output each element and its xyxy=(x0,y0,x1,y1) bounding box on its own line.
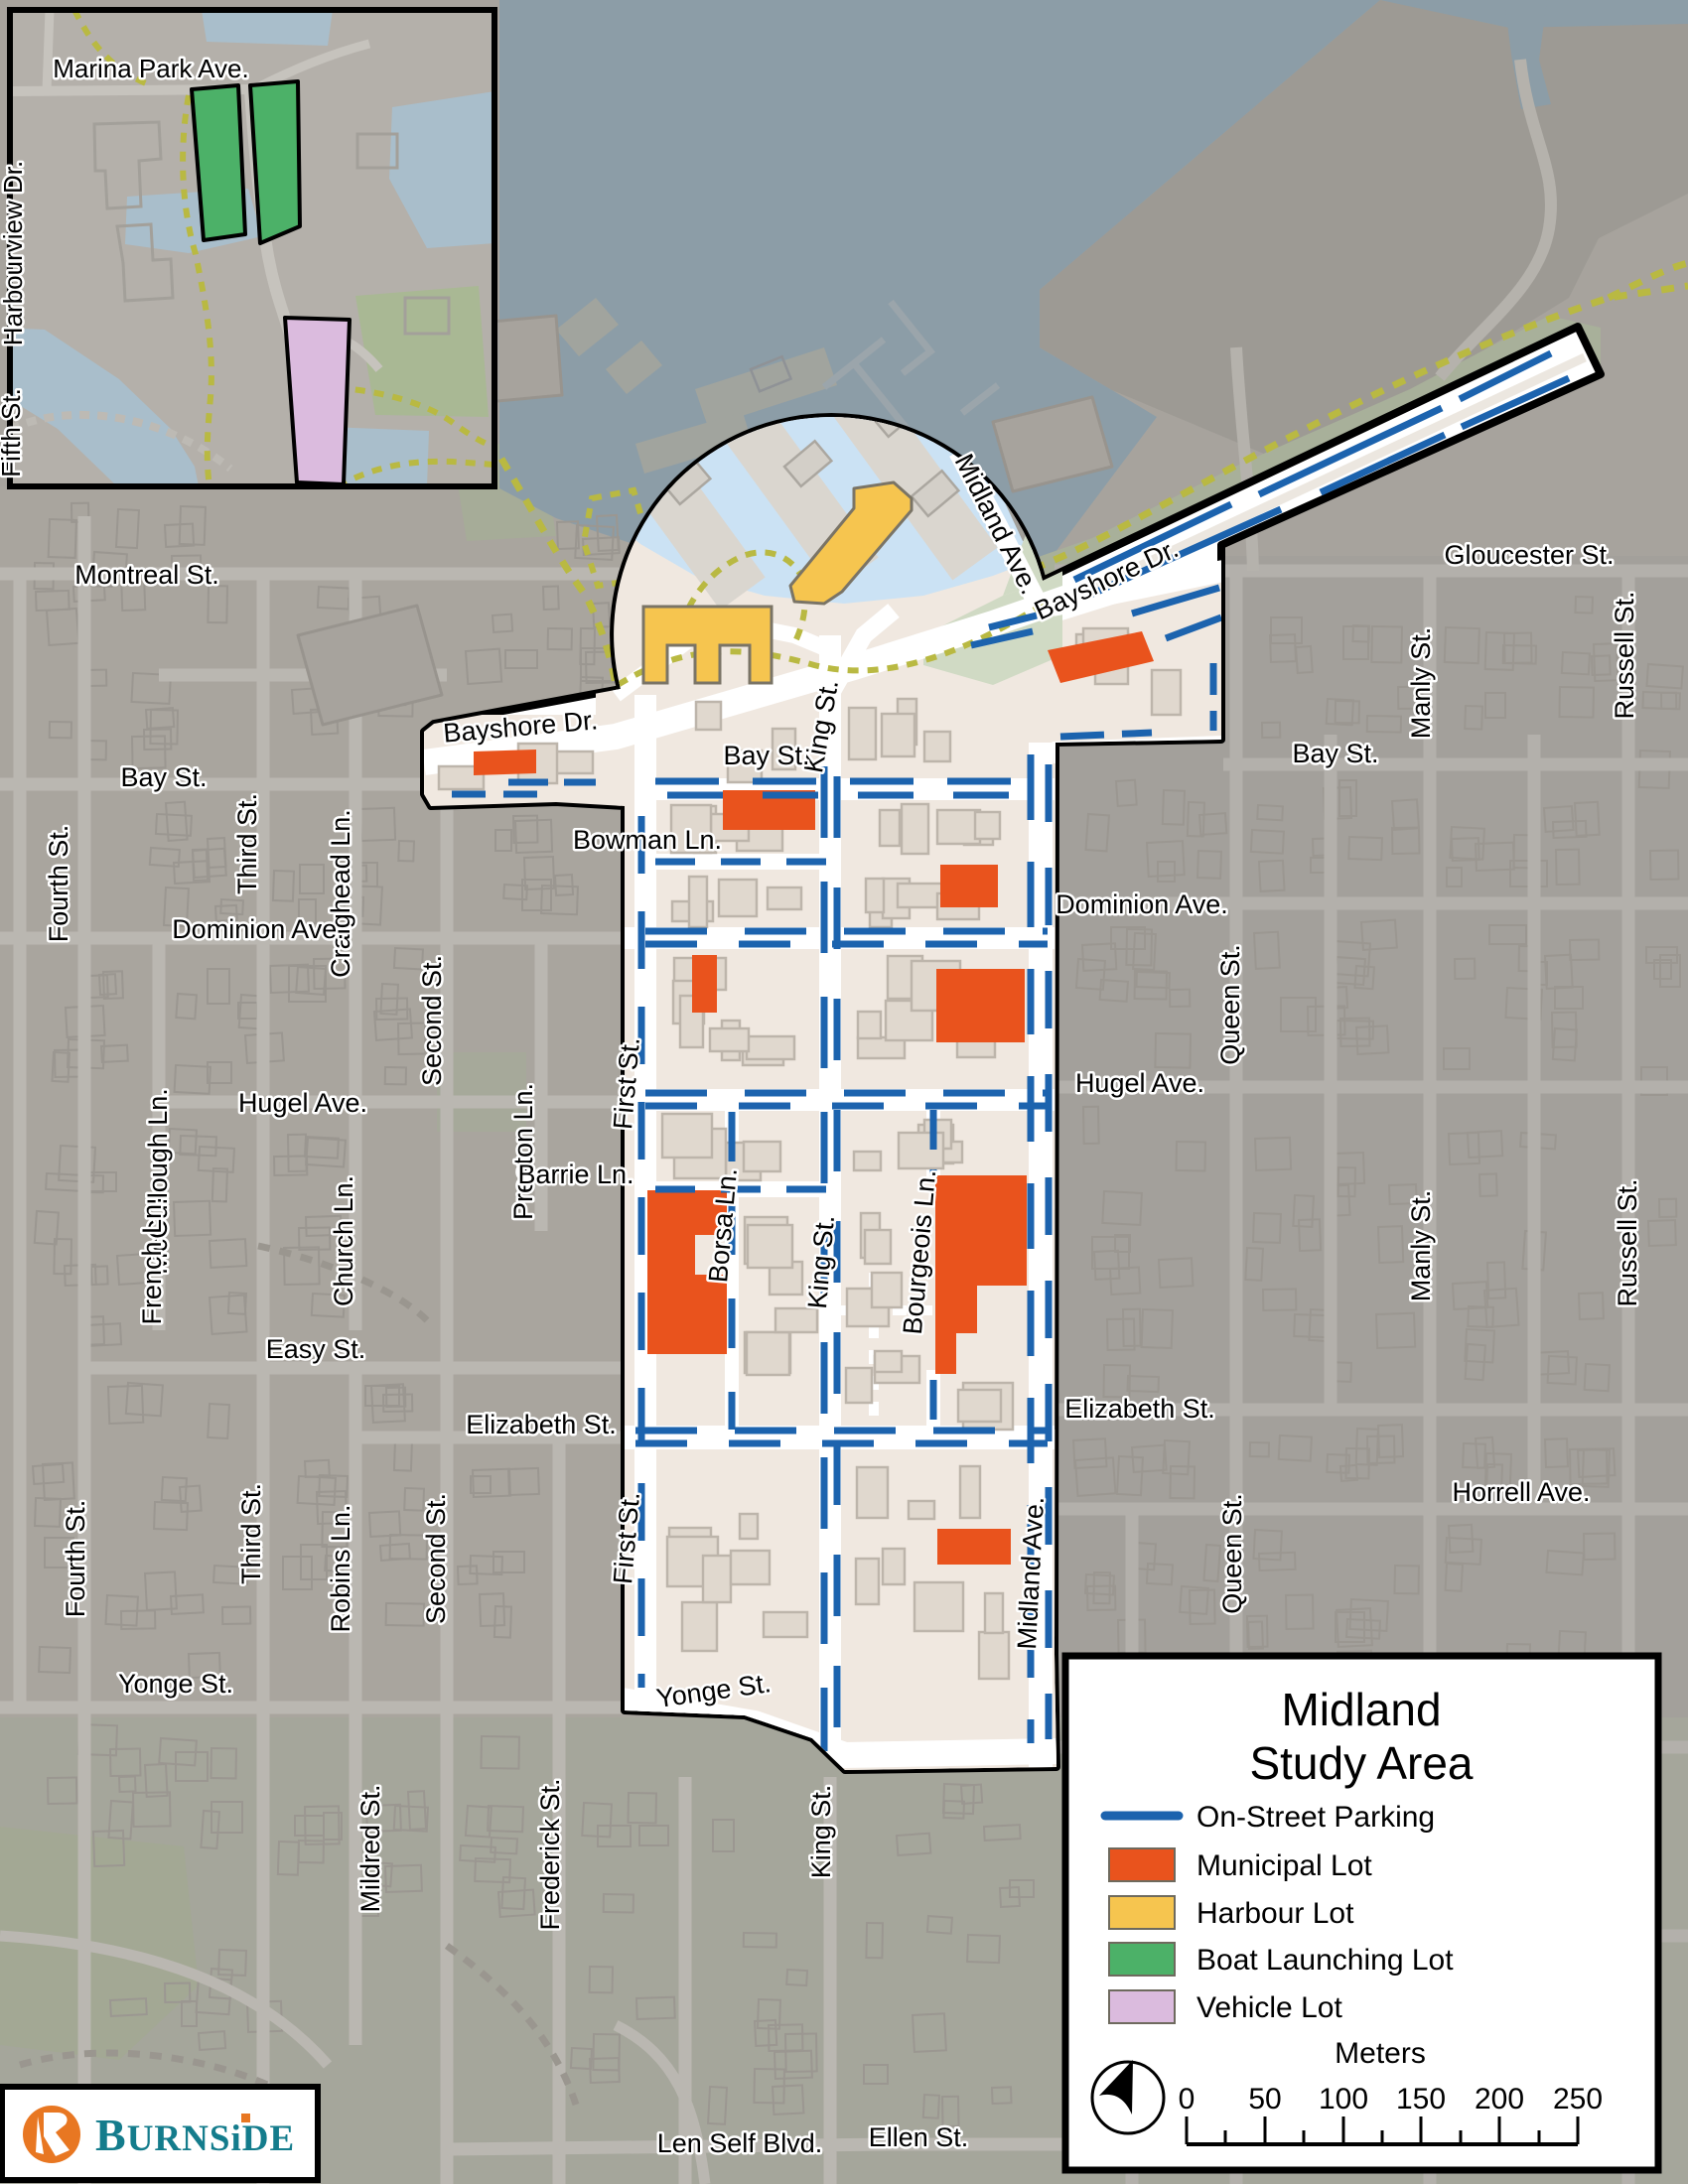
svg-text:Mildred St.: Mildred St. xyxy=(355,1784,385,1912)
svg-text:Dominion Ave.: Dominion Ave. xyxy=(1055,889,1228,919)
svg-text:Church Ln.: Church Ln. xyxy=(329,1175,358,1306)
svg-text:Queen St.: Queen St. xyxy=(1217,1493,1247,1614)
svg-text:Marina Park Ave.: Marina Park Ave. xyxy=(53,54,249,83)
svg-text:50: 50 xyxy=(1248,2083,1281,2116)
svg-text:Horrell Ave.: Horrell Ave. xyxy=(1452,1477,1590,1507)
svg-text:Elizabeth St.: Elizabeth St. xyxy=(466,1410,617,1439)
svg-text:Bay St.: Bay St. xyxy=(723,741,809,770)
svg-text:Fourth St.: Fourth St. xyxy=(61,1500,90,1618)
svg-text:Len Self Blvd.: Len Self Blvd. xyxy=(657,2128,823,2158)
svg-text:Barrie Ln.: Barrie Ln. xyxy=(517,1160,633,1189)
svg-text:100: 100 xyxy=(1319,2083,1368,2116)
svg-text:Third St.: Third St. xyxy=(236,1483,266,1584)
svg-text:Russell St.: Russell St. xyxy=(1610,591,1639,719)
svg-text:Montreal St.: Montreal St. xyxy=(74,560,219,590)
svg-text:Elizabeth St.: Elizabeth St. xyxy=(1064,1394,1215,1424)
svg-text:Hugel Ave.: Hugel Ave. xyxy=(1075,1068,1204,1098)
svg-text:Russell St.: Russell St. xyxy=(1613,1178,1642,1306)
svg-text:Vehicle Lot: Vehicle Lot xyxy=(1196,1991,1342,2024)
svg-text:Bay St.: Bay St. xyxy=(120,762,207,792)
svg-text:Bowman Ln.: Bowman Ln. xyxy=(573,825,722,855)
svg-text:Second St.: Second St. xyxy=(421,1493,451,1624)
svg-text:Gloucester St.: Gloucester St. xyxy=(1444,540,1614,570)
svg-text:200: 200 xyxy=(1475,2083,1524,2116)
svg-text:French Ln.: French Ln. xyxy=(137,1196,167,1324)
svg-text:0: 0 xyxy=(1179,2083,1196,2116)
svg-text:150: 150 xyxy=(1396,2083,1446,2116)
svg-text:Craighead Ln.: Craighead Ln. xyxy=(326,809,355,978)
svg-text:Frederick St.: Frederick St. xyxy=(535,1778,565,1930)
svg-text:On-Street Parking: On-Street Parking xyxy=(1196,1801,1435,1834)
svg-text:Fourth St.: Fourth St. xyxy=(44,825,73,943)
svg-text:Bay St.: Bay St. xyxy=(1292,739,1378,768)
svg-text:Manly St.: Manly St. xyxy=(1406,1190,1436,1302)
svg-text:Second St.: Second St. xyxy=(417,955,447,1086)
svg-text:King St.: King St. xyxy=(806,1785,836,1879)
svg-text:Harbour Lot: Harbour Lot xyxy=(1196,1897,1354,1930)
svg-text:Easy St.: Easy St. xyxy=(266,1334,366,1364)
svg-text:Study Area: Study Area xyxy=(1249,1737,1473,1789)
svg-text:Yonge St.: Yonge St. xyxy=(118,1669,233,1699)
svg-text:Fifth St.: Fifth St. xyxy=(0,388,26,478)
svg-text:Boat Launching Lot: Boat Launching Lot xyxy=(1196,1944,1454,1977)
svg-text:Midland: Midland xyxy=(1281,1684,1441,1735)
svg-text:Third St.: Third St. xyxy=(232,793,262,894)
svg-text:Ellen St.: Ellen St. xyxy=(869,2122,969,2152)
svg-text:Dominion Ave.: Dominion Ave. xyxy=(172,914,345,944)
svg-text:Preston Ln.: Preston Ln. xyxy=(508,1083,538,1220)
svg-text:250: 250 xyxy=(1553,2083,1603,2116)
svg-text:Harbourview Dr.: Harbourview Dr. xyxy=(0,161,28,345)
svg-text:Hugel Ave.: Hugel Ave. xyxy=(238,1088,367,1118)
svg-text:Robins Ln.: Robins Ln. xyxy=(326,1504,355,1632)
svg-text:Municipal Lot: Municipal Lot xyxy=(1196,1849,1372,1882)
svg-text:Meters: Meters xyxy=(1335,2037,1426,2070)
svg-text:Queen St.: Queen St. xyxy=(1215,944,1245,1065)
svg-text:Manly St.: Manly St. xyxy=(1406,627,1436,740)
